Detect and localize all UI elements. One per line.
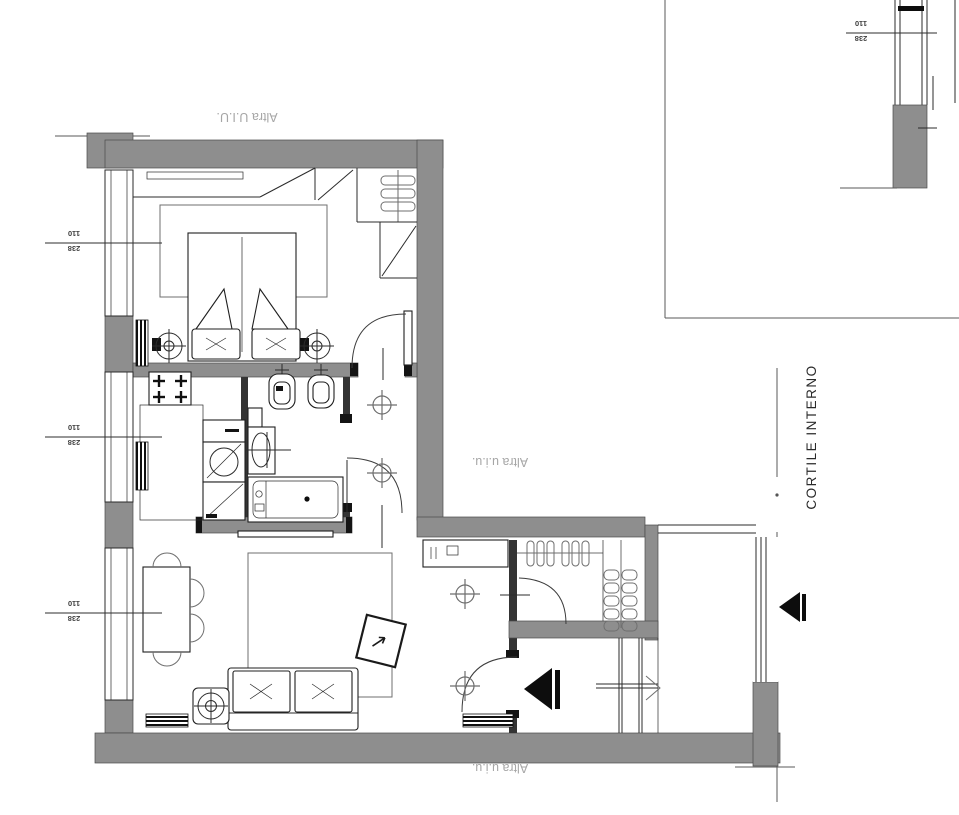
pillow	[252, 329, 300, 359]
wall-right-outer	[753, 682, 778, 766]
section-marker	[779, 592, 806, 622]
floor-lamp-icon	[193, 688, 229, 724]
walls	[87, 133, 780, 766]
wall-bottom	[95, 733, 780, 763]
dimension-height-label: 238	[68, 438, 81, 447]
bathtub-icon	[248, 477, 343, 522]
ceiling-lamp-icon	[450, 671, 480, 701]
shoe-rack	[604, 540, 637, 631]
chair-icon	[190, 579, 204, 607]
window-left-living	[105, 548, 133, 700]
dining-table	[143, 553, 204, 666]
door-bedroom	[350, 311, 412, 376]
adjacent-unit-label-right: Altra u.i.u.	[472, 455, 528, 469]
door-bathroom	[340, 414, 402, 513]
bedroom	[133, 168, 417, 363]
wall-left-pier-3	[105, 700, 133, 733]
wall-left-pier-2	[105, 502, 133, 548]
wall-entry-closet	[509, 540, 517, 657]
living-room	[143, 531, 406, 730]
radiator	[136, 320, 148, 366]
coat-closet	[517, 540, 603, 621]
ceiling-lamp-icon	[367, 390, 397, 420]
adjacent-unit-label-bottom: Altra u.i.u.	[472, 761, 528, 775]
window-right-entry	[753, 537, 778, 682]
radiator	[146, 714, 188, 727]
dimension-marker: 110 238	[45, 229, 162, 253]
entrance-arrow-marker	[524, 668, 560, 710]
nightstand-lamp-right	[300, 329, 334, 363]
dimension-height-label: 238	[855, 34, 868, 43]
ceiling-lamp-icon	[450, 579, 480, 609]
wall-bathroom-right-upper	[343, 377, 350, 417]
dimension-width-label: 110	[68, 599, 80, 608]
double-bed	[188, 233, 300, 361]
radiator	[136, 442, 148, 490]
sofa	[228, 668, 358, 730]
wall-top	[105, 140, 443, 168]
kitchen	[140, 372, 245, 520]
kitchen-units	[203, 420, 245, 520]
ceiling-lamp-icon	[367, 458, 397, 488]
bathroom	[245, 364, 343, 522]
entry-cabinet	[423, 540, 508, 567]
dimension-width-label: 110	[68, 423, 80, 432]
upper-floor-fragment: 110 238	[840, 0, 955, 188]
chair-icon	[190, 614, 204, 642]
wall-left-pier-1	[105, 316, 133, 372]
dimension-height-label: 238	[68, 614, 81, 623]
dimension-markers: 110 238 110 238 110 238	[45, 229, 162, 623]
washbasin-icon	[245, 408, 291, 474]
dimension-height-label: 238	[68, 244, 81, 253]
coffee-table	[356, 615, 405, 667]
floor-plan-drawing: 110 238	[0, 0, 959, 815]
nightstand-lamp-left	[152, 329, 186, 363]
radiator	[463, 714, 513, 727]
adjacent-unit-label-top: Altra U.I.U.	[216, 110, 277, 124]
tv-sideboard	[238, 531, 333, 537]
cooktop	[149, 372, 191, 405]
kitchen-counter	[140, 405, 203, 520]
wall-right	[417, 140, 443, 520]
chair-icon	[153, 553, 181, 567]
dimension-marker-upper: 110 238	[846, 19, 937, 43]
staircase	[596, 638, 660, 733]
chair-icon	[153, 652, 181, 666]
pillow	[192, 329, 240, 359]
door-entrance	[462, 650, 519, 718]
dimension-width-label: 110	[68, 229, 80, 238]
wall-entry-top	[417, 517, 645, 537]
courtyard-label: CORTILE INTERNO	[804, 364, 819, 509]
dimension-width-label: 110	[855, 19, 867, 28]
floor-plan-page: 110 238	[0, 0, 959, 815]
